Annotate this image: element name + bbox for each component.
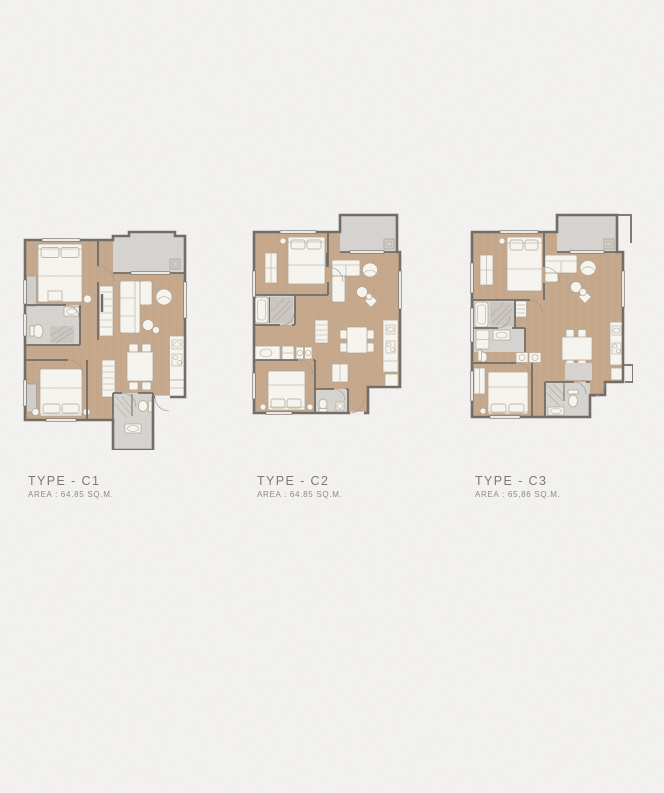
plan-c3-label: TYPE - C3 AREA : 65,86 SQ.M. <box>475 475 561 500</box>
nightstand <box>499 238 505 244</box>
dining-table <box>562 337 592 360</box>
balcony-slider <box>570 251 604 254</box>
bedroom-2 <box>260 371 313 410</box>
nightstand <box>84 295 92 303</box>
entry <box>332 364 348 382</box>
dining-table <box>127 352 153 381</box>
balcony-slider <box>350 251 384 254</box>
nightstand <box>32 409 39 416</box>
plan-c2-type-label: TYPE - C2 <box>257 475 343 489</box>
chaise <box>545 273 558 282</box>
armchair <box>156 289 172 305</box>
nightstand <box>480 408 486 414</box>
balcony-slider <box>131 272 170 275</box>
sink-counter <box>254 346 280 360</box>
shower <box>270 297 293 323</box>
washer <box>516 353 528 363</box>
storage-strip <box>315 320 328 343</box>
armchair <box>580 261 596 276</box>
toilet <box>319 399 327 409</box>
chaise <box>140 281 152 305</box>
plan-c3-type-label: TYPE - C3 <box>475 475 561 489</box>
balcony <box>113 232 185 273</box>
bathtub <box>255 297 268 323</box>
nightstand <box>280 238 286 244</box>
storage-strip <box>516 301 527 317</box>
wardrobe-corridor <box>100 286 114 336</box>
foyer <box>565 363 592 380</box>
plan-c3-area-label: AREA : 65,86 SQ.M. <box>475 491 561 500</box>
vanity-row <box>254 346 312 360</box>
bathtub <box>475 302 488 327</box>
ac-unit <box>604 239 614 249</box>
shower <box>490 302 514 326</box>
floor-plan-sheet: TYPE - C1 AREA : 64.85 SQ.M. TYPE - C2 A… <box>0 0 664 793</box>
plan-c1-label: TYPE - C1 AREA : 64.85 SQ.M. <box>28 475 114 500</box>
sofa <box>120 281 140 333</box>
coffee-table <box>143 320 154 331</box>
kitchen <box>383 320 398 387</box>
kitchen <box>170 336 186 397</box>
nightstand <box>260 404 266 410</box>
kitchen-cabinet <box>170 380 186 397</box>
floor-plan-c2 <box>252 213 403 416</box>
nightstand <box>307 404 313 410</box>
ac-unit <box>170 259 180 269</box>
toilet <box>569 395 578 407</box>
bathroom-1 <box>474 300 515 328</box>
dining-table <box>347 327 367 353</box>
fridge <box>611 368 623 380</box>
wc <box>315 389 348 413</box>
entry-mat <box>565 363 592 380</box>
washer <box>529 353 541 363</box>
storage-strip <box>102 360 115 397</box>
floor-plan-c1 <box>18 228 193 450</box>
bathroom-2 <box>113 393 153 450</box>
bathroom-1 <box>254 295 295 325</box>
balcony <box>557 215 617 252</box>
kitchen <box>610 322 623 380</box>
ac-unit <box>384 239 394 249</box>
tv <box>101 294 103 312</box>
bathroom-2 <box>545 382 590 417</box>
plan-c2-area-label: AREA : 64.85 SQ.M. <box>257 491 343 500</box>
sink-counter <box>493 330 510 340</box>
balcony <box>340 215 397 252</box>
dresser <box>48 291 62 301</box>
wardrobe <box>27 276 37 306</box>
floor-plan-c3 <box>468 213 633 420</box>
toilet <box>139 401 148 412</box>
plan-c1-area-label: AREA : 64.85 SQ.M. <box>28 491 114 500</box>
plan-c2-label: TYPE - C2 AREA : 64.85 SQ.M. <box>257 475 343 500</box>
fridge <box>385 374 398 387</box>
plan-c1-type-label: TYPE - C1 <box>28 475 114 489</box>
toilet <box>33 325 43 338</box>
bathroom-1 <box>25 305 80 345</box>
wardrobe <box>27 384 37 412</box>
